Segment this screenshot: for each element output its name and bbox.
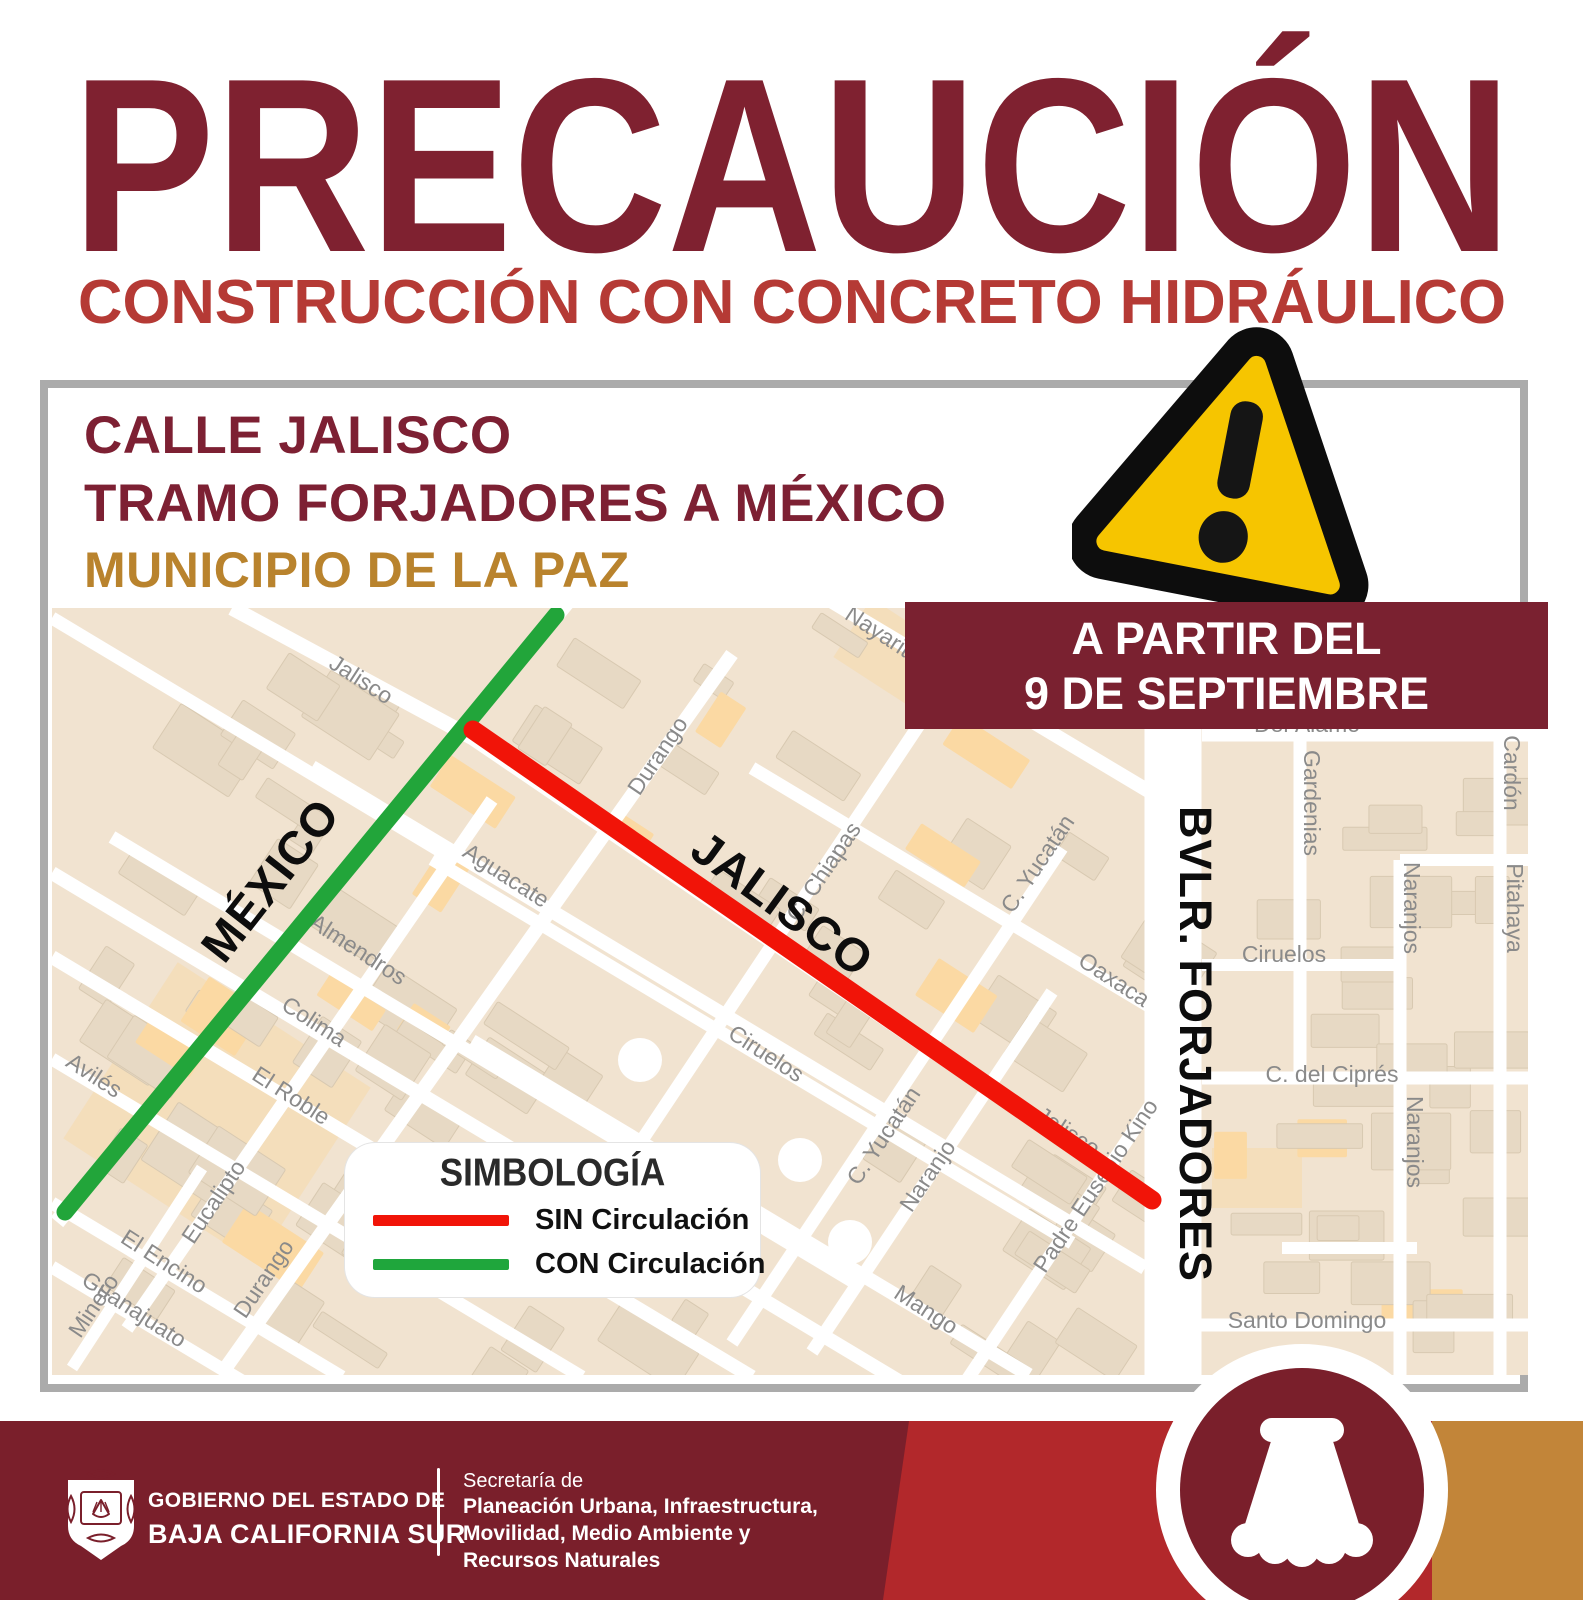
closed-route-swatch [373, 1215, 509, 1226]
legend-label: SIN Circulación [535, 1204, 749, 1237]
secretary-line: Planeación Urbana, Infraestructura, [463, 1493, 818, 1520]
legend-item: SIN Circulación [373, 1204, 760, 1237]
start-date-banner: A PARTIR DEL 9 DE SEPTIEMBRE [905, 602, 1548, 729]
shell-logo-badge [1156, 1344, 1448, 1600]
warning-triangle-icon [1072, 316, 1402, 616]
route-label: BVLR. FORJADORES [1170, 806, 1221, 1282]
poster: PRECAUCIÓN CONSTRUCCIÓN CON CONCRETO HID… [0, 0, 1583, 1600]
secretary-line: Movilidad, Medio Ambiente y [463, 1520, 818, 1547]
org-name: GOBIERNO DEL ESTADO DE BAJA CALIFORNIA S… [148, 1489, 466, 1550]
svg-text:Ciruelos: Ciruelos [1242, 941, 1326, 967]
org-line2: BAJA CALIFORNIA SUR [148, 1519, 466, 1550]
org-line1: GOBIERNO DEL ESTADO DE [148, 1489, 466, 1513]
notice-street: CALLE JALISCO [84, 405, 512, 466]
svg-text:Cardón: Cardón [1499, 735, 1525, 810]
legend-title: SIMBOLOGÍA [345, 1151, 760, 1196]
shell-icon [1156, 1344, 1448, 1600]
svg-text:Gardenias: Gardenias [1299, 750, 1325, 856]
banner-line2: 9 DE SEPTIEMBRE [905, 666, 1548, 721]
svg-text:C. del Ciprés: C. del Ciprés [1266, 1061, 1399, 1087]
svg-text:Pitahaya: Pitahaya [1502, 863, 1528, 953]
state-coat-of-arms-icon [64, 1466, 138, 1564]
secretary-prefix: Secretaría de [463, 1470, 818, 1493]
svg-text:Santo Domingo: Santo Domingo [1228, 1307, 1387, 1333]
secretary-line: Recursos Naturales [463, 1547, 818, 1574]
svg-text:Naranjos: Naranjos [1399, 862, 1425, 954]
footer-orange-band [1432, 1421, 1583, 1600]
legend: SIMBOLOGÍA SIN Circulación CON Circulaci… [345, 1143, 760, 1297]
secretary-block: Secretaría de Planeación Urbana, Infraes… [463, 1470, 818, 1574]
notice-stretch: TRAMO FORJADORES A MÉXICO [84, 473, 947, 534]
svg-text:Naranjos: Naranjos [1402, 1096, 1428, 1188]
title-block: PRECAUCIÓN CONSTRUCCIÓN CON CONCRETO HID… [0, 0, 1583, 345]
banner-line1: A PARTIR DEL [905, 611, 1548, 666]
legend-item: CON Circulación [373, 1248, 760, 1281]
legend-label: CON Circulación [535, 1248, 765, 1281]
footer-divider [437, 1468, 440, 1556]
page-title: PRECAUCIÓN [72, 26, 1512, 304]
notice-municipality: MUNICIPIO DE LA PAZ [84, 541, 630, 599]
open-route-swatch [373, 1259, 509, 1270]
